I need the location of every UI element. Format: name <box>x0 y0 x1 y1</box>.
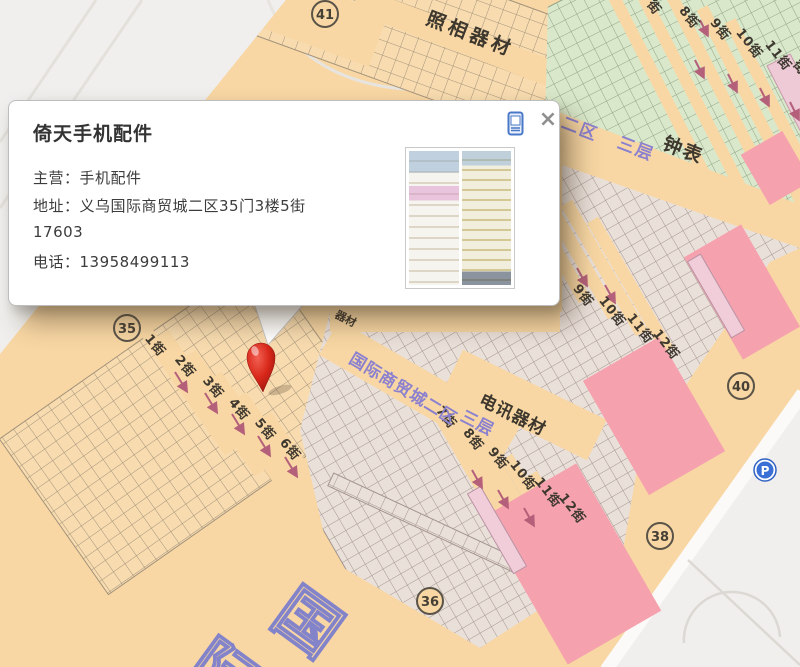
parking-icon: P <box>754 459 776 481</box>
popup-address-line2: 17603 <box>33 223 83 241</box>
photo-shelf-left <box>409 151 459 285</box>
map-canvas[interactable]: 1街 2街 3街 4街 5街 6街 街 8街 9街 10街 11街 街 9街 1… <box>0 0 800 667</box>
svg-text:36: 36 <box>421 595 439 610</box>
gate-marker-41: 41 <box>312 1 338 27</box>
svg-text:P: P <box>761 464 770 478</box>
gate-marker-35: 35 <box>114 315 140 341</box>
svg-text:41: 41 <box>316 8 334 23</box>
aisle-under-popup <box>330 306 560 332</box>
photo-shelf-right <box>462 151 512 285</box>
close-icon[interactable]: × <box>537 109 559 131</box>
gate-marker-36: 36 <box>417 588 443 614</box>
svg-text:35: 35 <box>118 322 136 337</box>
info-window: 倚天手机配件 主营：手机配件 地址：义乌国际商贸城二区35门3楼5街 17603… <box>8 100 560 306</box>
popup-phone: 电话：13958499113 <box>33 251 190 272</box>
popup-title: 倚天手机配件 <box>33 119 153 146</box>
gate-marker-40: 40 <box>728 373 754 399</box>
mobile-phone-icon[interactable] <box>507 111 524 136</box>
popup-business: 主营：手机配件 <box>33 167 142 188</box>
store-photo-thumbnail[interactable] <box>405 147 515 289</box>
gate-marker-38: 38 <box>647 523 673 549</box>
svg-text:40: 40 <box>732 380 750 395</box>
svg-text:38: 38 <box>651 530 669 545</box>
popup-address-line1: 地址：义乌国际商贸城二区35门3楼5街 <box>33 195 306 216</box>
